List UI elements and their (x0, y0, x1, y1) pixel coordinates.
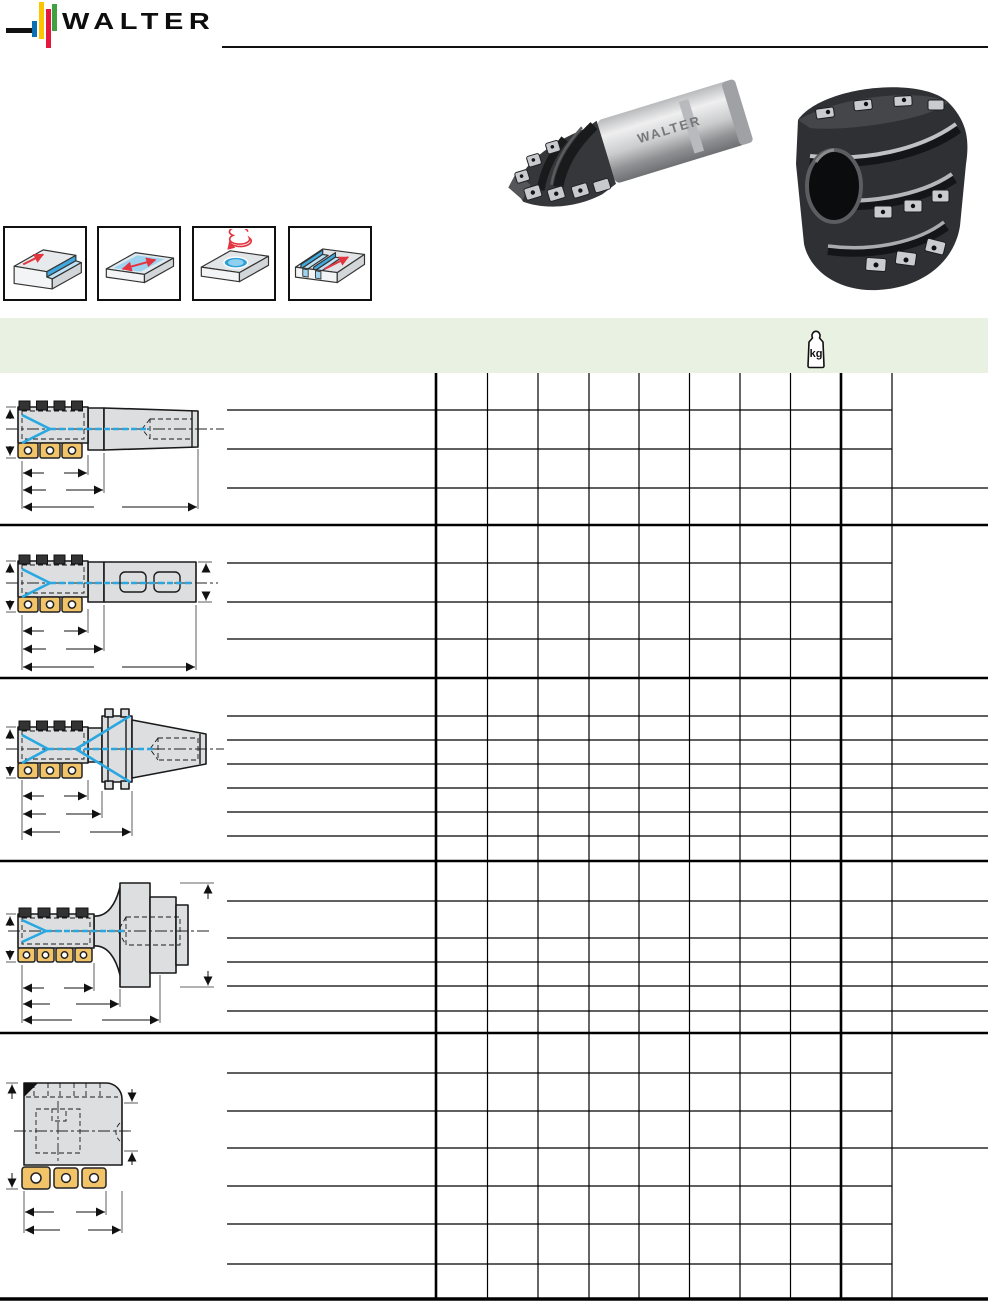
inserts (18, 443, 82, 458)
drawing-weldon-shank-cutter (2, 545, 232, 675)
inserts (18, 763, 82, 778)
inserts (18, 597, 82, 612)
shank (94, 883, 188, 987)
inserts (22, 1167, 106, 1189)
catalog-page: WALTER WALTER (0, 0, 988, 1304)
cutter-body (14, 1083, 134, 1189)
drawing-cylindrical-shank-cutter (2, 393, 232, 515)
drawing-hsk-shank-cutter (2, 875, 232, 1027)
inserts (18, 948, 92, 962)
drawing-shell-type-cutter (2, 1065, 152, 1237)
drawing-iso-taper-shank-cutter (2, 690, 232, 858)
cutter-head (18, 908, 94, 962)
